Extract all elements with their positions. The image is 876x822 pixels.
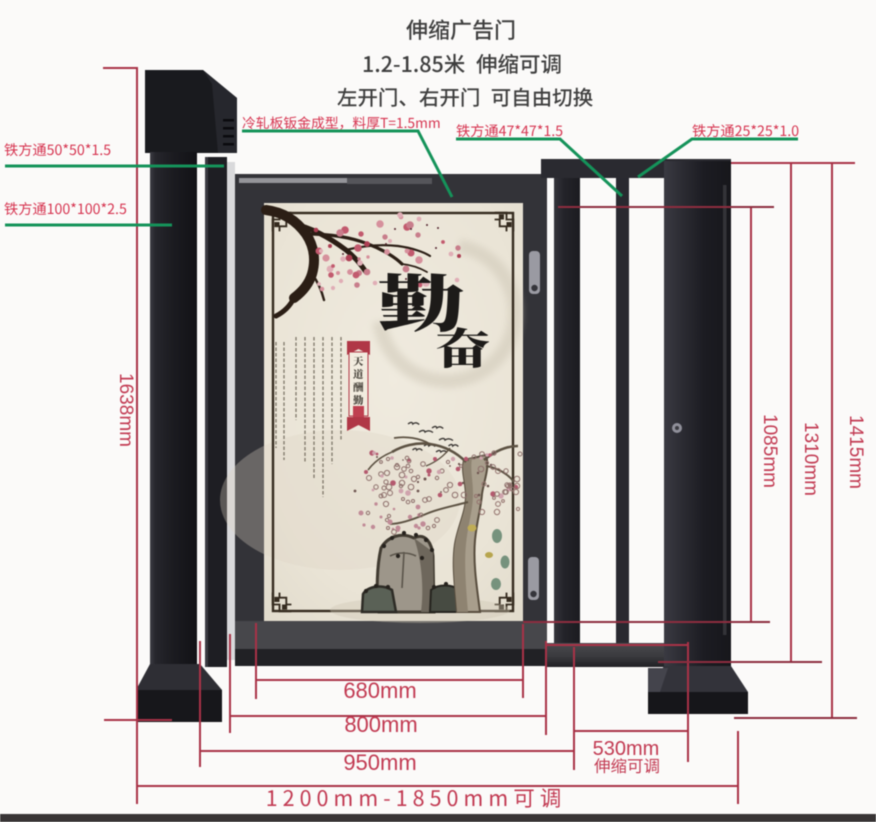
svg-text:530mm: 530mm — [593, 738, 660, 760]
svg-text:800mm: 800mm — [344, 712, 417, 737]
svg-text:1085mm: 1085mm — [759, 414, 780, 488]
svg-text:950mm: 950mm — [343, 750, 416, 775]
svg-text:1415mm: 1415mm — [845, 415, 866, 489]
svg-text:1310mm: 1310mm — [800, 422, 821, 496]
svg-text:1638mm: 1638mm — [115, 373, 136, 447]
svg-text:680mm: 680mm — [343, 678, 416, 703]
